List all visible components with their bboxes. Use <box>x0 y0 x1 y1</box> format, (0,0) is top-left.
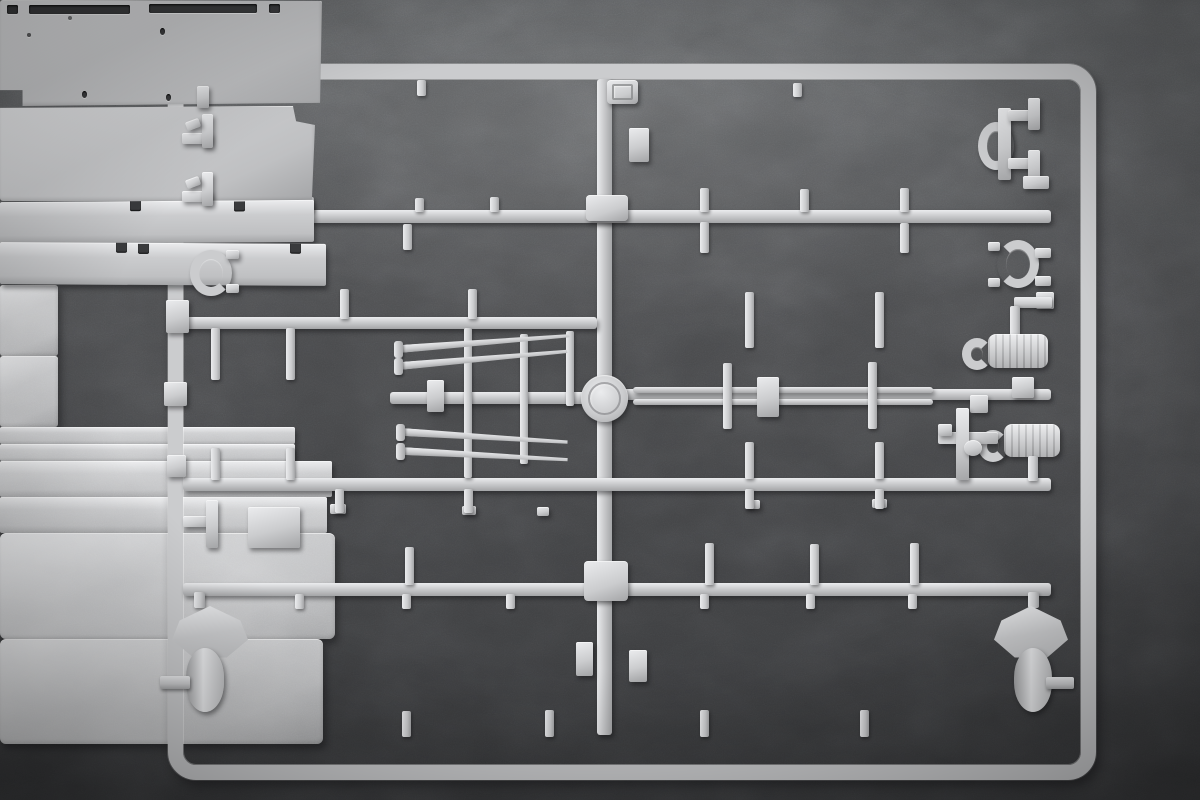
rail-clip <box>202 114 213 148</box>
gate <box>705 543 714 585</box>
thin-rod <box>633 387 933 393</box>
rail-arm <box>1046 677 1074 689</box>
gate <box>1028 456 1038 481</box>
gate <box>700 710 709 737</box>
gate <box>415 198 424 212</box>
mast-fitting <box>427 380 444 412</box>
sprue-letter-tab <box>607 80 638 104</box>
gate <box>700 188 709 212</box>
junction-boss-bottom <box>584 561 628 601</box>
panel-edge-tab <box>629 128 649 162</box>
gate <box>793 83 802 97</box>
gate <box>335 489 344 513</box>
strip-tab <box>537 507 549 516</box>
roller-part-left <box>186 648 224 712</box>
left-strip-row2 <box>0 200 314 244</box>
center-mold-boss <box>581 375 628 422</box>
gate <box>295 594 304 609</box>
ladder-center-connector <box>757 377 779 417</box>
gate <box>286 328 295 380</box>
bracket-nub <box>226 284 239 293</box>
panel-edge-tab <box>629 650 647 682</box>
gate <box>506 594 515 609</box>
gate <box>900 223 909 253</box>
gate <box>700 594 709 609</box>
gate <box>875 489 884 509</box>
rail-angle-bracket <box>206 500 218 548</box>
runner-block <box>1012 377 1034 398</box>
ladder-upright <box>868 362 877 429</box>
mast-base-cap <box>394 341 403 358</box>
rail-clip <box>202 172 213 206</box>
gate <box>700 222 709 253</box>
gate <box>860 710 869 737</box>
gate <box>468 289 477 319</box>
gate <box>402 711 411 737</box>
bracket-nub <box>988 278 1000 287</box>
gate <box>745 442 754 479</box>
gate <box>875 292 884 348</box>
horseshoe-bracket-right <box>997 240 1039 288</box>
gate <box>464 489 473 513</box>
top-right-panel <box>0 106 315 201</box>
gate <box>340 289 349 319</box>
rail-arm <box>160 676 190 689</box>
gate <box>806 594 815 609</box>
gate <box>405 547 414 585</box>
runner-row3 <box>183 478 1051 491</box>
valve-nub <box>938 424 952 436</box>
gate <box>810 544 819 585</box>
runner-row2-left <box>183 317 597 329</box>
top-left-panel <box>0 0 322 106</box>
rail-block <box>166 300 189 333</box>
top-right-bracket-foot <box>1023 176 1049 189</box>
gate <box>745 292 754 348</box>
gate <box>403 224 412 250</box>
ladder-upright <box>723 363 732 429</box>
valve-knob <box>964 440 982 456</box>
sprue-photo <box>0 0 1200 800</box>
embossed-plaque <box>612 84 633 100</box>
bracket-stub <box>1035 248 1051 258</box>
junction-boss-top <box>586 195 628 221</box>
mast-base-cap <box>396 424 405 441</box>
hooked-cylinder <box>988 334 1048 368</box>
rail-block <box>167 455 186 477</box>
bracket-nub <box>988 242 1000 251</box>
gate <box>1010 306 1020 336</box>
gate <box>875 442 884 479</box>
bracket-nub <box>226 250 239 259</box>
gate <box>910 543 919 585</box>
strip-step <box>248 507 300 548</box>
gate <box>900 188 909 212</box>
gate <box>800 189 809 212</box>
bracket-stub <box>1035 276 1051 286</box>
gate <box>211 328 220 380</box>
mast-base-cap <box>394 358 403 375</box>
right-strip-row2 <box>0 242 326 286</box>
runner-block <box>970 395 988 413</box>
gate <box>745 489 754 509</box>
gate <box>194 592 205 608</box>
mast-connector <box>566 331 574 406</box>
rail-stub <box>197 86 209 108</box>
gate <box>908 594 917 609</box>
gate <box>545 710 554 737</box>
hooked-cylinder <box>1004 424 1060 457</box>
thin-rod <box>633 399 933 405</box>
top-right-bracket-head <box>1028 98 1040 130</box>
gate <box>402 594 411 609</box>
gate <box>490 197 499 212</box>
rail-block <box>164 382 187 406</box>
gate <box>1028 592 1039 608</box>
panel-edge-tab <box>576 642 593 676</box>
gate <box>417 80 426 96</box>
gate <box>286 448 295 480</box>
gate <box>211 448 220 480</box>
mast-base-cap <box>396 443 405 460</box>
